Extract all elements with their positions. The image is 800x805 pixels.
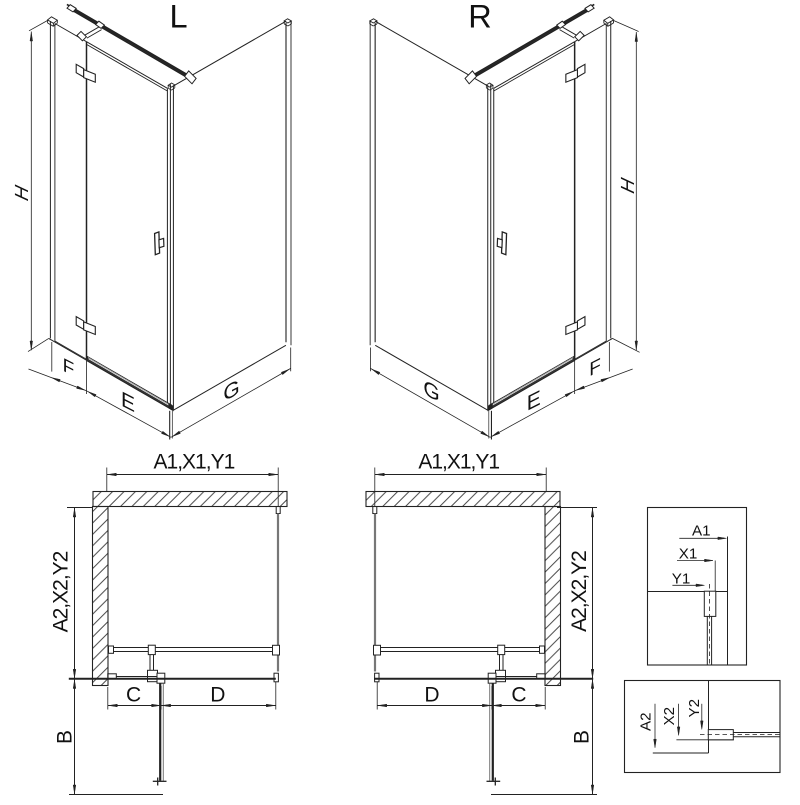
svg-text:R: R [468,0,491,35]
svg-text:B: B [54,730,77,744]
svg-text:A2,X2,Y2: A2,X2,Y2 [49,551,72,632]
svg-text:D: D [424,684,439,707]
svg-text:Y1: Y1 [672,571,691,588]
svg-text:D: D [210,684,225,707]
svg-text:A1: A1 [692,522,711,539]
svg-text:X1: X1 [679,545,698,562]
svg-text:C: C [511,684,526,707]
svg-text:A1,X1,Y1: A1,X1,Y1 [154,450,235,473]
svg-text:Y2: Y2 [686,699,703,718]
svg-text:L: L [169,0,187,35]
svg-text:B: B [571,730,594,744]
svg-text:A1,X1,Y1: A1,X1,Y1 [418,450,499,473]
svg-text:X2: X2 [661,707,678,726]
svg-text:C: C [126,684,141,707]
svg-text:A2,X2,Y2: A2,X2,Y2 [568,551,591,632]
svg-text:A2: A2 [637,712,654,731]
